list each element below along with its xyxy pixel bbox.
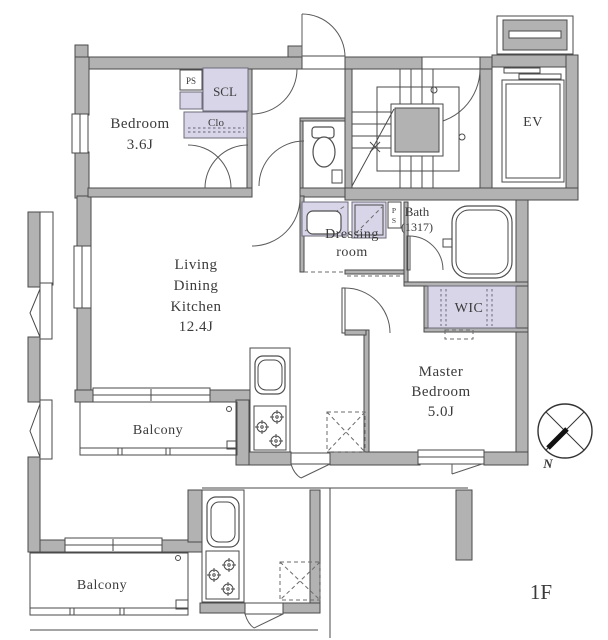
ldk-label-1: Living (175, 257, 218, 273)
elevator-door (504, 68, 540, 73)
bedroom-size: 3.6J (127, 137, 154, 153)
windows (30, 114, 484, 552)
dressing-label-2: room (336, 245, 368, 260)
balcony-upper-label: Balcony (133, 423, 183, 438)
scl-label: SCL (213, 84, 237, 99)
entrance (302, 14, 345, 69)
toilet (312, 127, 342, 183)
ev-label: EV (523, 115, 543, 130)
master-label-2: Bedroom (411, 384, 470, 400)
kitchen-counter (250, 348, 365, 452)
ldk-size: 12.4J (179, 319, 214, 335)
bedroom-label: Bedroom (110, 116, 169, 132)
master-window-flap (452, 464, 482, 474)
wic-label: WIC (455, 301, 484, 316)
floor-plan: N Bedroom 3.6J PS SCL Clo EV Bath (1317)… (0, 0, 608, 640)
lower-unit-door-leaf (254, 614, 283, 628)
ldk-door-arc (252, 198, 300, 246)
casement-window-icon (30, 404, 40, 457)
master-label-1: Master (419, 364, 464, 380)
bath-size: (1317) (401, 220, 433, 234)
lower-unit (30, 488, 468, 638)
balcony-lower-label: Balcony (77, 578, 127, 593)
drain-icon (176, 556, 181, 561)
ldk-label-2: Dining (174, 278, 219, 294)
dressing-label-1: Dressing (325, 227, 379, 242)
ldk-label-3: Kitchen (171, 299, 222, 315)
floor-label: 1F (530, 580, 552, 604)
bathtub (443, 206, 512, 278)
drain-icon (227, 407, 232, 412)
compass-north-label: N (542, 456, 553, 471)
elevator-machine-block (497, 16, 573, 54)
compass: N (538, 404, 592, 471)
ps-label: PS (186, 76, 196, 86)
stairs (352, 69, 465, 188)
master-size: 5.0J (428, 404, 455, 420)
toilet-door-arc (259, 141, 304, 186)
kitchen-balcony-door-leaf (301, 464, 330, 478)
compass-needle (548, 429, 567, 448)
clo-label: Clo (208, 117, 224, 129)
floor-plan-drawing: N Bedroom 3.6J PS SCL Clo EV Bath (1317)… (0, 0, 608, 640)
kitchen-sink (255, 356, 285, 394)
bath-label: Bath (405, 204, 430, 219)
stair-landing (395, 108, 439, 152)
meter-box (180, 92, 202, 109)
kitchen-sink (207, 497, 239, 547)
elevator-cab (502, 80, 564, 182)
scl-door-arc (252, 69, 297, 114)
master-door-arc (345, 288, 390, 333)
casement-window-icon (30, 289, 40, 337)
bath-door-arc (409, 236, 443, 270)
ps-side-s: S (392, 216, 396, 225)
ps-side-p: P (392, 206, 396, 215)
entrance-door-arc (302, 14, 345, 57)
